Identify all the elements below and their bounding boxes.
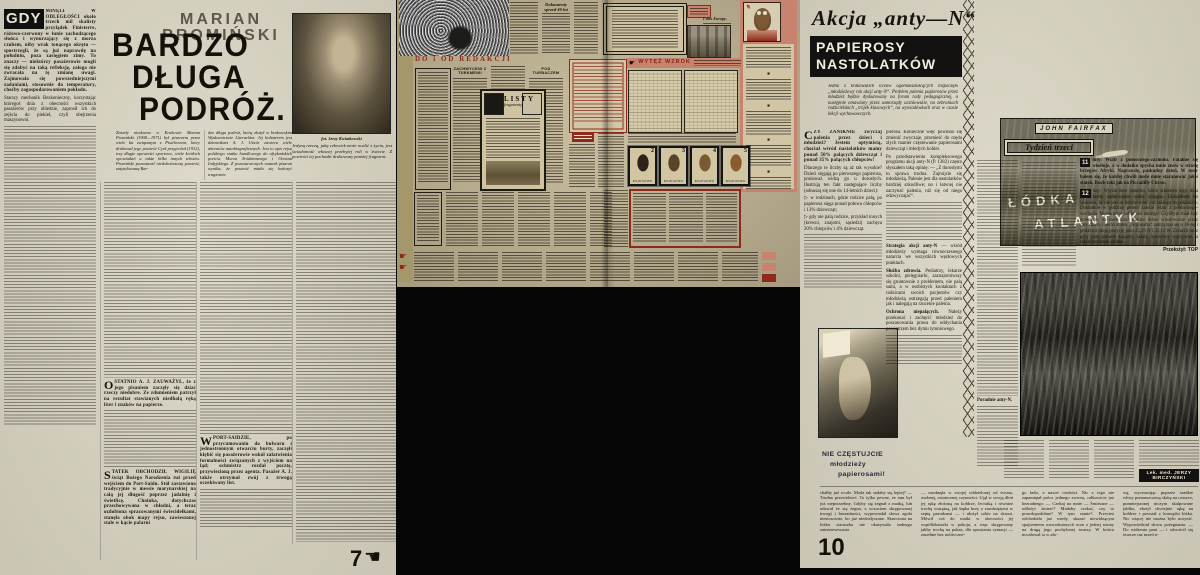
fiction-col-2: — mruknęła w swojej oddzielonej od świat… (921, 490, 1013, 536)
text-block (200, 489, 292, 529)
stamp-shepherd: 3 БЪЛГАРИЯ (659, 146, 688, 186)
wytez-wzrok-band: ☛ WYTĘŻ WZROK (627, 58, 743, 68)
stamp-spaniel: 5 БЪЛГАРИЯ (721, 146, 750, 186)
listy-photo-dark (485, 94, 503, 114)
subhead-ochrona: Ochrona niepalących. (886, 310, 939, 315)
dropcap: W (200, 436, 213, 447)
article-title-line2: DŁUGA (132, 62, 246, 94)
bottom-strip (414, 252, 776, 282)
article-intro: Jedno z krakowskich liceów ogólnokształc… (828, 84, 958, 128)
text-block (612, 10, 678, 48)
dog-stamps-row: 2 БЪЛГАРИЯ 3 БЪЛГАРИЯ 4 БЪЛГАРИЯ 5 БЪЛГА… (628, 146, 750, 186)
letter-column (574, 2, 598, 54)
page-right: Akcja „anty—N“ PAPIEROSY NASTOLATKÓW Jed… (800, 0, 1200, 568)
letter-column (569, 144, 595, 188)
listy-photo-strip (486, 161, 540, 185)
intro-column-b: dzo długa podróż, którą złożył w krakows… (204, 130, 292, 180)
classifieds-box (630, 190, 740, 247)
fiction-col-4: wę, wyczuwając poprzez rzadkie włosy pom… (1123, 490, 1193, 536)
spot-difference-left (628, 70, 682, 133)
group-photo (688, 26, 730, 57)
text-block (804, 234, 882, 290)
dropcap: S (104, 470, 112, 481)
text-block (574, 135, 592, 141)
diary-entry-number: 12 (1080, 189, 1091, 198)
certificate-box (603, 3, 687, 55)
diary-middle-column (1022, 162, 1076, 266)
article-title-line1: BARDZO (112, 30, 249, 62)
photo-caption: fot. Jerzy Kwiatkowski (292, 136, 391, 141)
dropcap: C (804, 130, 814, 141)
text-block (694, 60, 741, 66)
letter-column-boxed (415, 68, 451, 190)
lead-word: GDY (4, 9, 44, 29)
red-label (572, 133, 594, 142)
headline-dokumenty: Dokumenty sprzed 40 lat (542, 2, 570, 12)
diary-left-column: Poradnie anty-N. (977, 160, 1018, 478)
letters-band (414, 192, 612, 248)
text-block (296, 182, 396, 542)
title-nastolatkow: NASTOLATKÓW (816, 56, 956, 73)
headline-turbacz: POD TURBACZEM (529, 66, 563, 77)
text-block (4, 126, 96, 426)
sea-photo (1020, 272, 1198, 436)
left-column-1: GDY MINĘLI W ODLEGŁOŚCI około trzech mil… (4, 9, 96, 559)
text-block (486, 118, 540, 158)
text-block (542, 13, 570, 53)
pointing-hand-icon: ☛ (629, 60, 635, 67)
listy-box: LISTY fragmenty (480, 89, 546, 191)
section-header-redakcja: DO i OD REDAKCJI (415, 56, 512, 63)
bullet-2: gdy nie palą rodzice, przykład innych (k… (804, 215, 882, 231)
diary-entry-11: luty: Wiatr z północnego-zachodu. Fataln… (1080, 158, 1198, 186)
headline-turkmenia: ZACHWYCENI Z TURKMENII (453, 66, 487, 77)
text-block (628, 133, 736, 143)
stamp-dachshund: 2 БЪЛГАРИЯ (628, 146, 657, 186)
article-title-line3: PODRÓŻ. (139, 94, 286, 126)
diary-column: 11 luty: Wiatr z północnego-zachodu. Fat… (1080, 158, 1198, 268)
dropcap: O (104, 380, 114, 391)
right-column-1: CZY ZANIKNIE zwyczaj palenia przez dziec… (804, 130, 882, 326)
continuation-columns: Lek. med. JERZY BIRCZYŃSKI (1004, 440, 1199, 482)
right-column-2: pierosa. Konieczne więc powinno się zmie… (886, 130, 962, 480)
humor-box (569, 59, 627, 133)
col1-para2: Dlaczego te liczby są aż tak wysokie? Dz… (804, 166, 882, 194)
author-credit: Lek. med. JERZY BIRCZYŃSKI (1139, 469, 1199, 482)
col2-para1: pierosa. Konieczne więc powinno się zmie… (886, 130, 962, 152)
week-box: Tydzień trzeci (1004, 139, 1094, 156)
rowboat-on-wave (1102, 149, 1128, 158)
text-block (886, 335, 962, 365)
text-block (104, 410, 196, 468)
fiction-col-3: go ładu, a nawet czułości. Nic z tego ni… (1022, 490, 1114, 536)
page-left: GDY MINĘLI W ODLEGŁOŚCI około trzech mil… (0, 0, 396, 575)
page-number-7: 7 (350, 548, 362, 570)
sluzba-text: Pediatrzy, lekarze szkolni, pielęgniarki… (886, 269, 962, 308)
photo-note: Jedyną rzeczą, jaką człowiek może ocalić… (292, 143, 392, 179)
letter-column: Dokumenty sprzed 40 lat (542, 2, 570, 54)
spot-difference-right (684, 70, 738, 133)
red-hand-icon: ☛ (399, 263, 407, 272)
kicker-akcja: Akcja „anty—N“ (812, 8, 976, 29)
translator-credit: Przełożył: TOP (1080, 248, 1198, 253)
wytez-wzrok-title: WYTĘŻ WZROK (638, 60, 691, 66)
col1-para1: ZY ZANIKNIE zwyczaj palenia przez dzieci… (804, 130, 882, 163)
section-portsaid: PORT-SAIDZIE, po przycumowaniu do bulwar… (200, 436, 292, 486)
title-box: PAPIEROSY NASTOLATKÓW (810, 36, 962, 77)
intro-column-a: Zmarły niedawno w Krakowie Marian Promiń… (116, 130, 200, 180)
moire-halftone-block (399, 0, 509, 56)
fiction-col-1: chałby już wcale. Moda tak stałaby się l… (820, 490, 912, 536)
section-ostatnio: STATNIO A. J. ZAUWAŻYŁ, że z jego pisani… (104, 380, 196, 408)
text-block (977, 160, 1018, 396)
author-portrait-photo (292, 13, 391, 134)
diary-entry-number: 11 (1080, 158, 1090, 167)
section-statek: TATEK OBCHODZIŁ WIGILIĘ świąt Bożego Nar… (104, 470, 196, 526)
magazine-scan: GDY MINĘLI W ODLEGŁOŚCI około trzech mil… (0, 0, 1200, 575)
text-block (886, 202, 962, 242)
stamp-boxer: 4 БЪЛГАРИЯ (690, 146, 719, 186)
text-block (200, 182, 292, 434)
halftone-dot (447, 25, 473, 51)
listy-subtitle: fragmenty (504, 103, 522, 108)
title-papierosy: PAPIEROSY (816, 39, 956, 56)
left-column-2: OSTATNIO A. J. ZAUWAŻYŁ, że z jego pisan… (100, 182, 196, 560)
zigzag-divider (963, 0, 974, 437)
subhead-sluzba: Służba zdrowia. (886, 269, 921, 274)
text-block (1022, 162, 1076, 266)
page-number-10: 10 (818, 536, 845, 560)
diary-entry-12: luty: Wyrzuciłem lusterko, które stłukłe… (1080, 189, 1198, 245)
subhead-strategia: Strategia akcji anty-N (886, 244, 937, 249)
fiction-strip: chałby już wcale. Moda tak stałaby się l… (820, 486, 1198, 536)
letter-column (510, 2, 538, 54)
middle-spread: DO i OD REDAKCJI ZACHWYCENI Z TURKMENII … (397, 0, 800, 287)
page-fold (601, 0, 615, 287)
text-block (104, 182, 196, 378)
bullet-1: w rodzinach, gdzie rodzice palą, po papi… (804, 196, 882, 212)
owl-illustration: ✎ (744, 3, 780, 41)
left-column-3: WPORT-SAIDZIE, po przycumowaniu do bulwa… (196, 182, 292, 560)
left-column-4 (292, 182, 396, 544)
col2-para2: Po przedstawieniu kompleksowego programu… (886, 155, 962, 200)
pointing-hand-icon: ☚ (364, 548, 381, 567)
red-hand-icon: ☛ (399, 252, 407, 261)
aphorism-column: ✱ ✱ ✱ ✱ (743, 44, 794, 189)
text-block (418, 72, 448, 182)
left-col1-para2: Starszy mechanik Bezkonieczny, korzystaj… (4, 96, 96, 124)
subhead-poradnie: Poradnie anty-N. (977, 398, 1018, 404)
owl-signature: ✎ (745, 5, 750, 11)
fairfax-author: JOHN FAIRFAX (1036, 124, 1112, 133)
